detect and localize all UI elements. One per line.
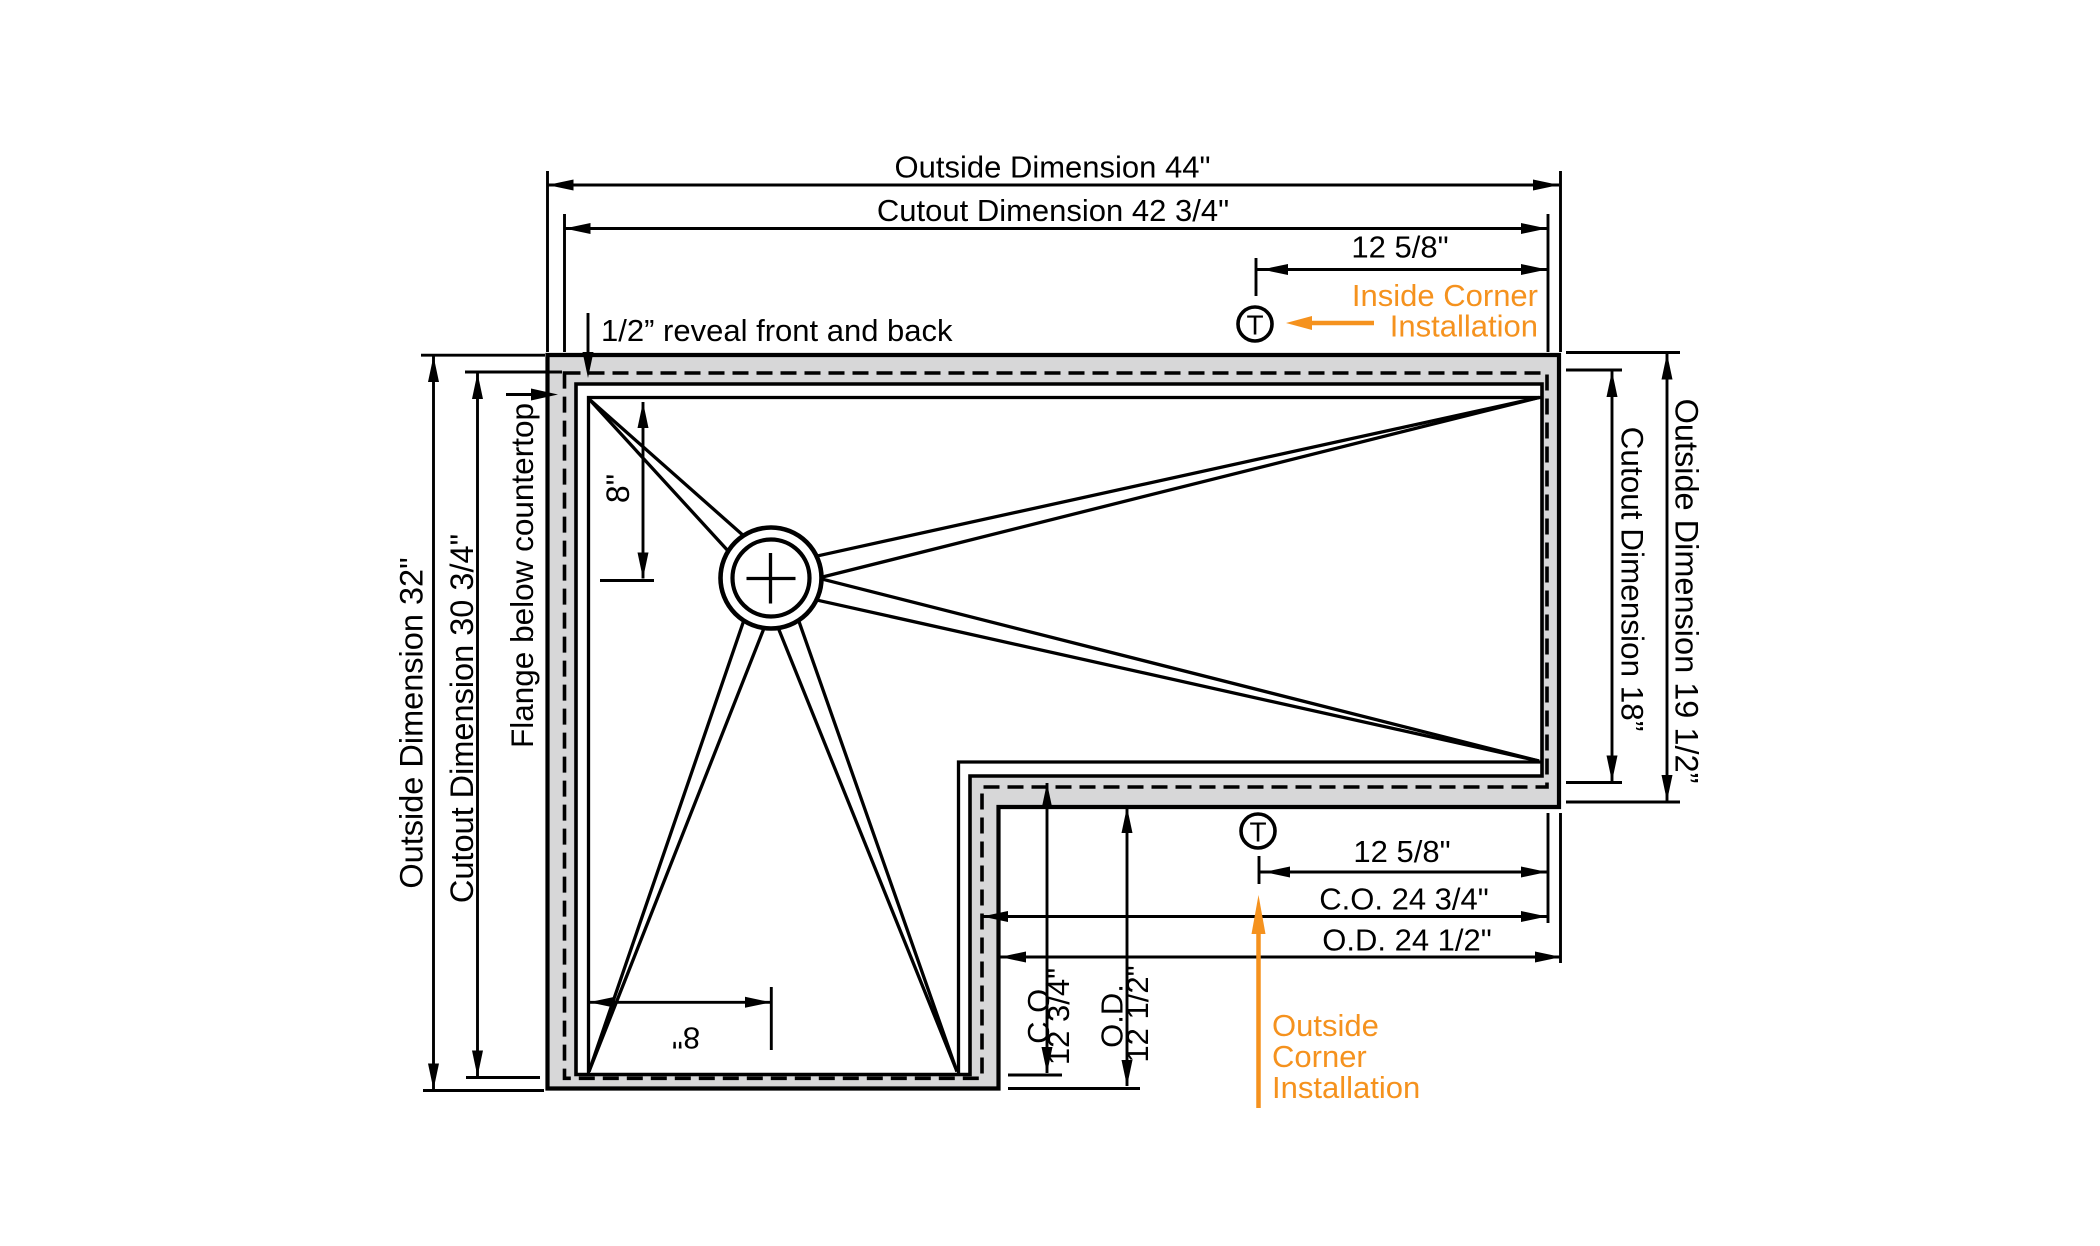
svg-text:Cutout Dimension 30 3/4": Cutout Dimension 30 3/4" bbox=[444, 534, 480, 903]
svg-text:T: T bbox=[1246, 310, 1263, 341]
svg-text:12 5/8": 12 5/8" bbox=[1353, 834, 1450, 869]
svg-text:12 1/2": 12 1/2" bbox=[1120, 965, 1155, 1062]
svg-text:8": 8" bbox=[672, 1021, 700, 1056]
svg-text:12 3/4": 12 3/4" bbox=[1041, 968, 1076, 1065]
svg-text:Corner: Corner bbox=[1272, 1039, 1367, 1074]
svg-text:8": 8" bbox=[600, 474, 636, 503]
svg-text:Outside Dimension 44": Outside Dimension 44" bbox=[895, 150, 1211, 185]
svg-text:C.O. 24 3/4": C.O. 24 3/4" bbox=[1319, 882, 1489, 917]
svg-text:1/2” reveal front and back: 1/2” reveal front and back bbox=[601, 313, 953, 348]
svg-text:Outside: Outside bbox=[1272, 1008, 1379, 1043]
svg-text:O.D. 24 1/2": O.D. 24 1/2" bbox=[1322, 923, 1492, 958]
svg-text:Installation: Installation bbox=[1272, 1070, 1420, 1105]
svg-text:Cutout Dimension 18”: Cutout Dimension 18” bbox=[1615, 427, 1651, 732]
svg-text:Outside Dimension 19 1/2”: Outside Dimension 19 1/2” bbox=[1669, 399, 1705, 784]
svg-text:Outside Dimension 32": Outside Dimension 32" bbox=[394, 557, 430, 888]
svg-text:T: T bbox=[1249, 817, 1266, 848]
svg-text:12 5/8": 12 5/8" bbox=[1351, 230, 1448, 265]
svg-text:Flange below countertop: Flange below countertop bbox=[504, 403, 540, 748]
svg-text:Installation: Installation bbox=[1390, 309, 1538, 344]
svg-text:Cutout Dimension 42 3/4": Cutout Dimension 42 3/4" bbox=[877, 193, 1229, 228]
